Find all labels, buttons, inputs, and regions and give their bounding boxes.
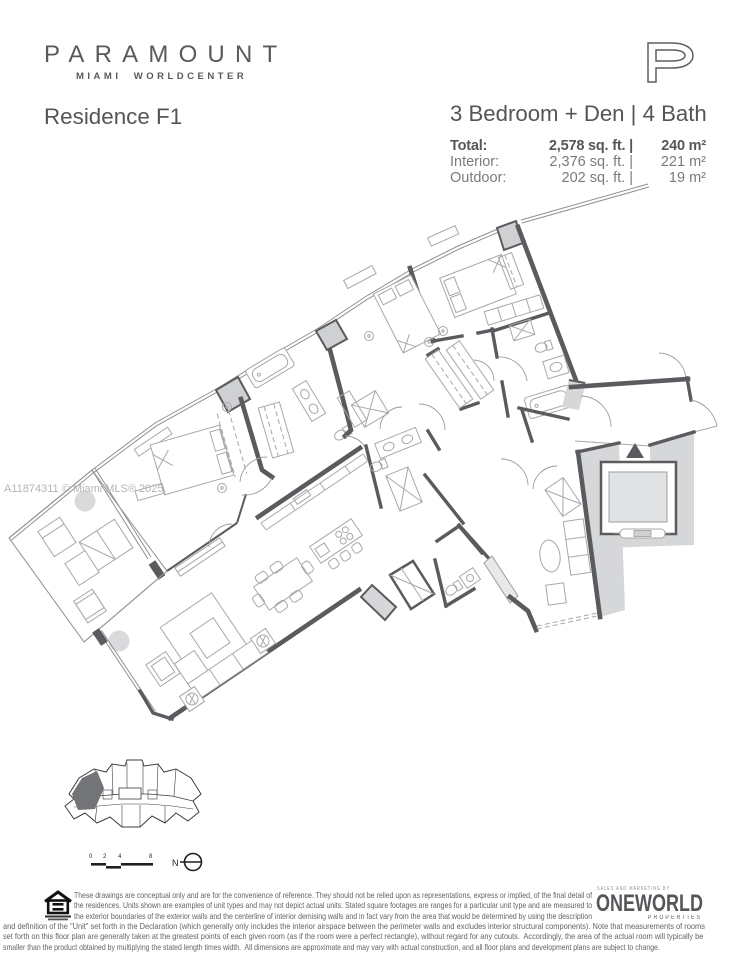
svg-text:0: 0 xyxy=(89,854,93,860)
svg-text:4: 4 xyxy=(118,854,122,860)
svg-text:2: 2 xyxy=(103,854,107,860)
svg-text:8: 8 xyxy=(149,854,153,860)
svg-text:N: N xyxy=(172,858,179,868)
svg-text:A11874311 © Miami MLS® 2025: A11874311 © Miami MLS® 2025 xyxy=(4,483,164,495)
